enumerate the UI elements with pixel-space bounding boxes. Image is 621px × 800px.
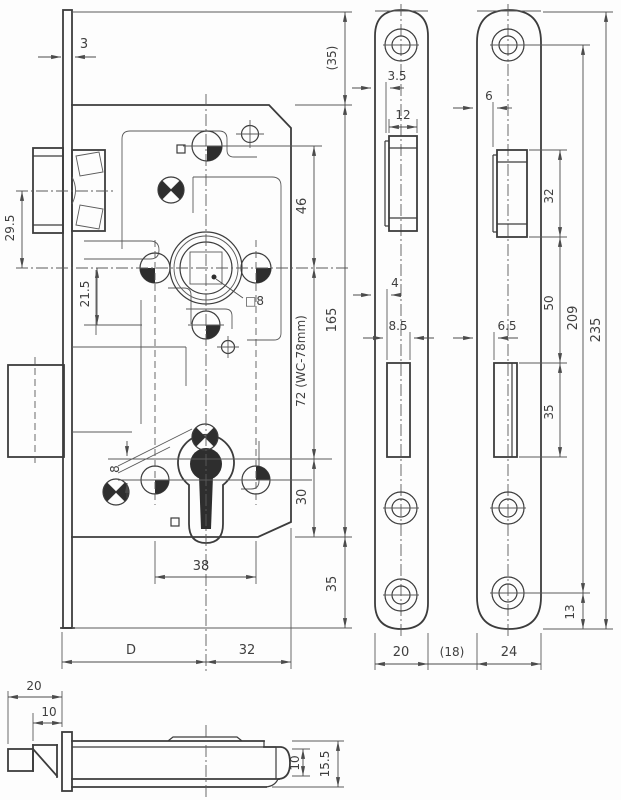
latch-bolt <box>33 148 105 233</box>
faceplate-edge <box>63 10 72 628</box>
pin-hole <box>217 336 239 358</box>
dim-label: 10 <box>288 755 302 770</box>
dim-nut-offset-21-5: 21.5 <box>78 268 142 325</box>
dim-label: 15.5 <box>318 751 332 778</box>
screw-post-icon <box>158 177 184 203</box>
dim-label: 21.5 <box>78 281 92 308</box>
dim-label: 6.5 <box>497 319 516 333</box>
dim-label: 24 <box>501 645 518 660</box>
dim-backset-and-depth: D 32 <box>62 528 291 669</box>
dim-chain-inner: 46 72 (WC-78mm) 30 <box>270 146 322 537</box>
dim-label: 32 <box>542 188 556 203</box>
dim-label: 35 <box>542 404 556 419</box>
dim-label: 4 <box>391 276 399 290</box>
square-hole <box>171 518 179 526</box>
screw-post-icon <box>103 479 129 505</box>
dim-label: 3 <box>80 37 88 52</box>
dim-label: □8 <box>245 294 264 308</box>
dim-bolt-width-8-5: 8.5 <box>363 319 434 360</box>
dim-label: 3.5 <box>387 69 406 83</box>
dim-label: 12 <box>395 108 410 122</box>
dim-label: 10 <box>41 705 56 719</box>
technical-drawing: 3 29.5 21.5 □8 8 46 72 (WC-78mm) 30 <box>0 0 621 800</box>
dim-label: 20 <box>26 679 41 693</box>
dim-plate-width-24: 24 <box>477 633 541 670</box>
dim-label: 13 <box>563 604 577 619</box>
bolt-cutout <box>387 363 410 457</box>
strike-plate-view: 6 6.5 32 50 35 209 13 <box>453 4 613 670</box>
dim-plate-gap: (18) <box>428 645 477 664</box>
dim-label: (35) <box>325 46 339 71</box>
dim-label: 35 <box>325 576 340 593</box>
dim-plate-width-20: 20 <box>375 633 428 670</box>
dim-label: 38 <box>193 559 210 574</box>
dim-screw-distance-209: 209 13 <box>526 45 590 629</box>
dim-latch-inset-6: 6 <box>453 89 512 147</box>
screw-post-icon <box>192 424 218 450</box>
dim-hole-spacing-38: 38 <box>155 541 256 584</box>
dim-label: 20 <box>393 645 410 660</box>
dim-label: 209 <box>566 306 581 331</box>
dim-case-inner-10: 10 <box>288 749 310 776</box>
latch-cutout <box>493 150 527 237</box>
dim-label: 165 <box>325 308 340 333</box>
drawing-canvas: 3 29.5 21.5 □8 8 46 72 (WC-78mm) 30 <box>0 0 621 800</box>
faceplate-view: 3.5 12 4 8.5 20 <box>352 4 434 670</box>
dead-bolt <box>8 357 64 465</box>
dim-label: 8.5 <box>388 319 407 333</box>
dim-follower-square: □8 <box>245 294 264 308</box>
pin-hole <box>236 120 264 148</box>
faceplate-side <box>62 732 72 791</box>
front-view: 3 29.5 21.5 □8 8 46 72 (WC-78mm) 30 <box>3 10 352 672</box>
dim-label: D <box>126 643 136 658</box>
dim-latch-axis-29-5: 29.5 <box>3 191 22 268</box>
dim-bolt-inset-4: 4 <box>353 276 401 360</box>
dim-latch-width-12: 12 <box>389 108 417 133</box>
dim-label: 32 <box>239 643 256 658</box>
dim-label: 6 <box>485 89 493 103</box>
dim-label: 72 (WC-78mm) <box>294 315 308 407</box>
case-side <box>72 737 290 787</box>
dim-label: 8 <box>108 465 122 473</box>
latch-head-side <box>33 745 57 777</box>
dim-label: 235 <box>589 318 604 343</box>
side-view: 20 10 10 15.5 <box>8 679 344 797</box>
dim-label: 50 <box>542 295 556 310</box>
dim-label: 30 <box>295 489 310 506</box>
bolt-cutout <box>494 363 517 457</box>
dim-label: 46 <box>295 198 310 215</box>
dim-label: (18) <box>440 645 465 659</box>
dim-label: 29.5 <box>3 215 17 242</box>
latch-tip <box>8 749 33 771</box>
dim-latch-inset-3-5: 3.5 <box>352 69 407 133</box>
dim-latch-bevel-10: 10 <box>33 705 62 741</box>
dim-faceplate-thickness: 3 <box>38 37 96 57</box>
